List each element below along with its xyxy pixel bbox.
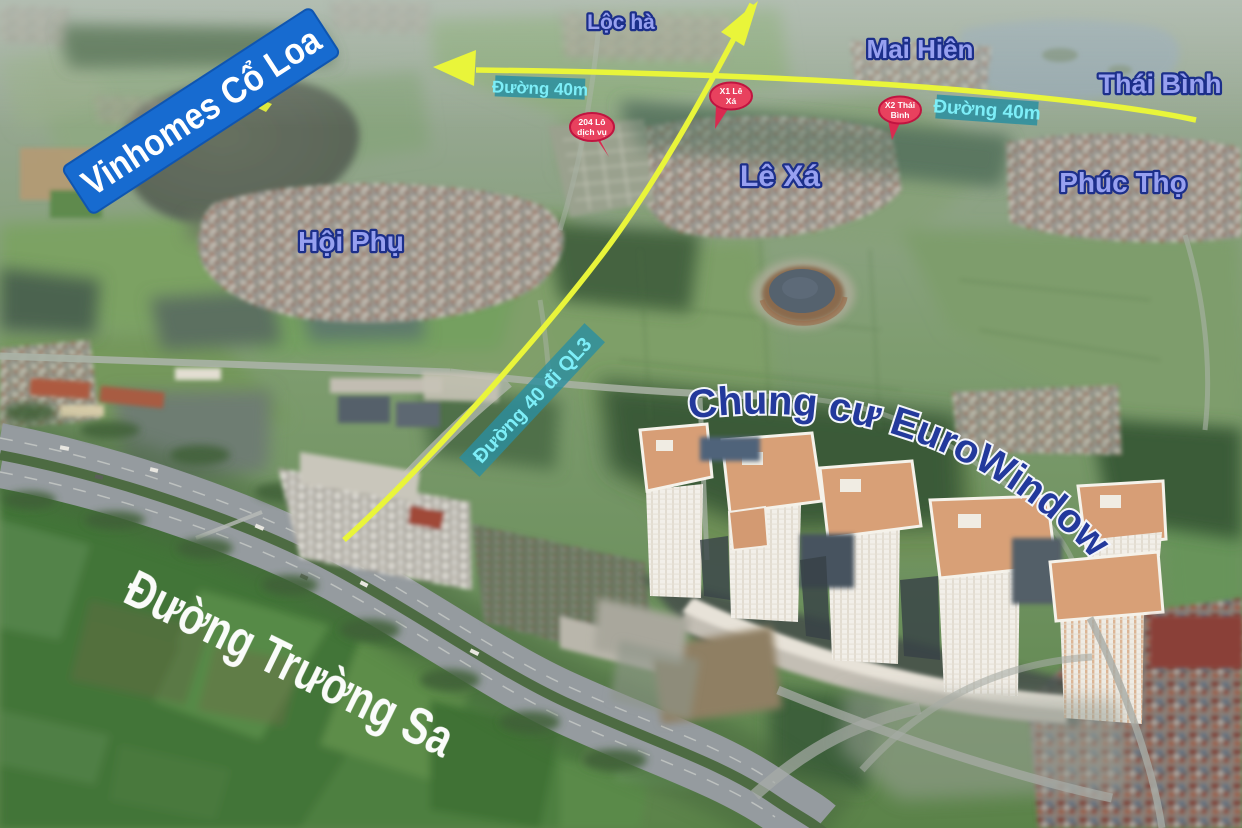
svg-text:Xá: Xá: [726, 96, 737, 106]
svg-text:X2 Thái: X2 Thái: [885, 100, 915, 110]
svg-text:Lộc hà: Lộc hà: [587, 11, 655, 34]
svg-text:Phúc Thọ: Phúc Thọ: [1059, 167, 1187, 198]
svg-text:Bình: Bình: [891, 110, 910, 120]
svg-text:Thái Bình: Thái Bình: [1099, 69, 1222, 99]
svg-text:dịch vụ: dịch vụ: [577, 127, 607, 137]
svg-text:X1 Lê: X1 Lê: [720, 86, 743, 96]
svg-text:204 Lô: 204 Lô: [579, 117, 606, 127]
svg-text:Mai Hiên: Mai Hiên: [867, 34, 974, 64]
svg-text:Lê Xá: Lê Xá: [740, 160, 820, 193]
svg-text:Đường 40m: Đường 40m: [492, 77, 589, 99]
svg-text:Hội Phụ: Hội Phụ: [298, 226, 404, 257]
